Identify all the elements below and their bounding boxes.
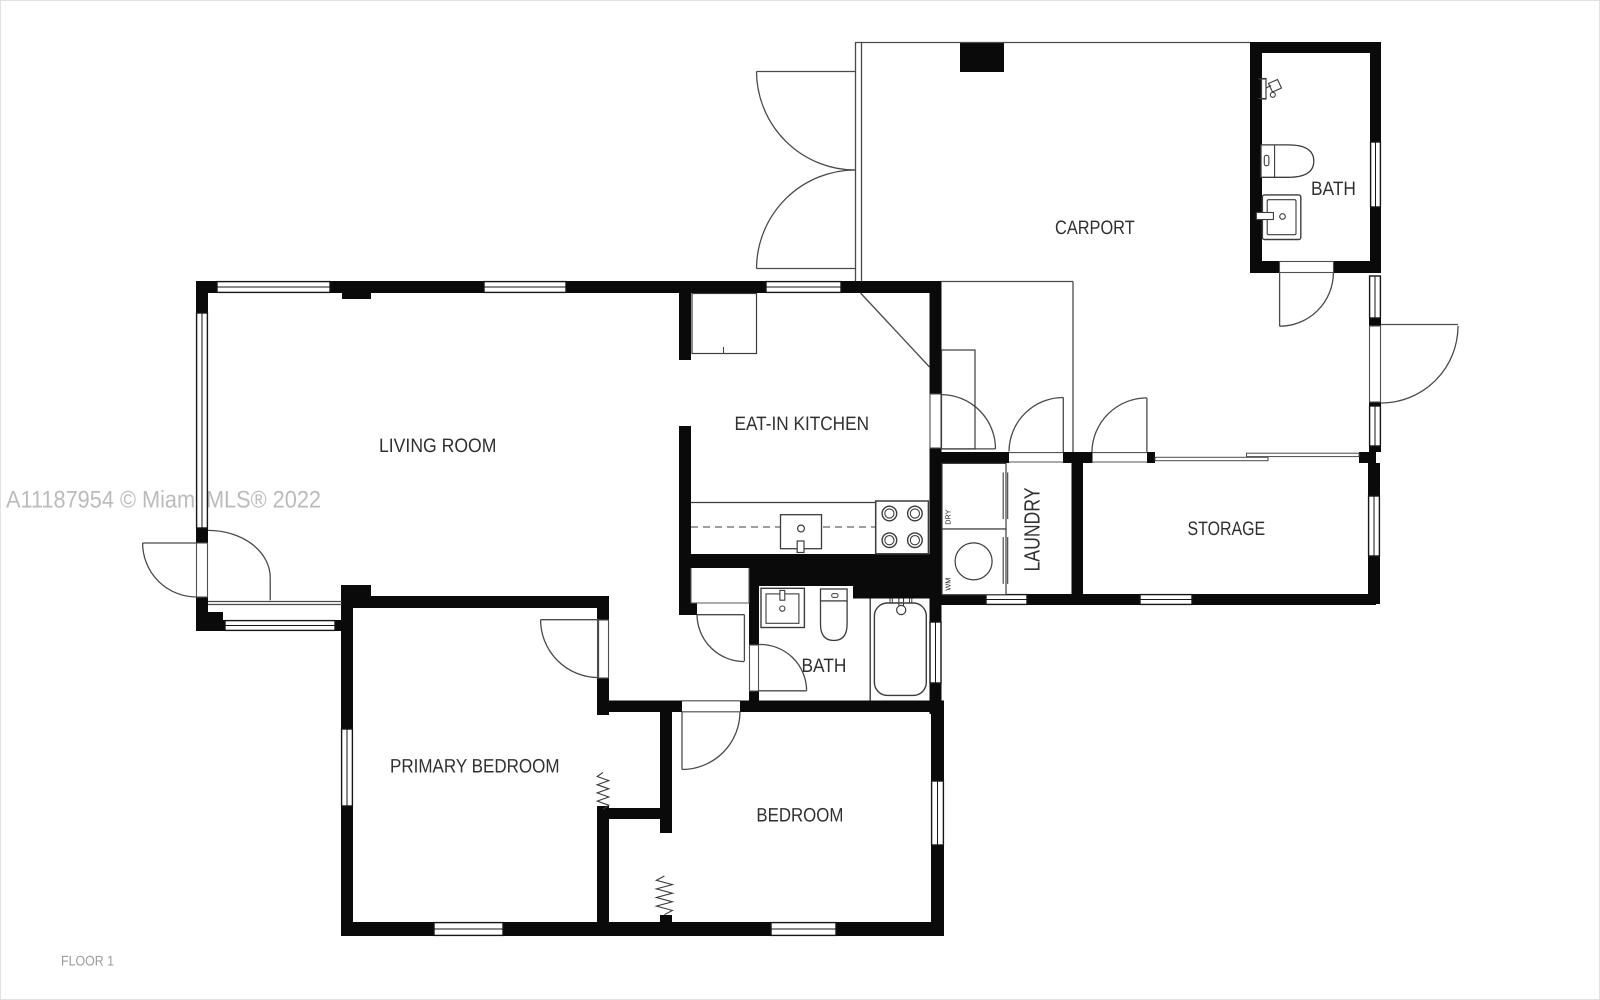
svg-text:A11187954 © Miami MLS® 2022: A11187954 © Miami MLS® 2022 [6,487,321,514]
svg-text:LAUNDRY: LAUNDRY [1020,487,1045,571]
svg-text:EAT-IN KITCHEN: EAT-IN KITCHEN [735,413,870,435]
svg-text:LIVING ROOM: LIVING ROOM [379,435,496,457]
svg-text:CARPORT: CARPORT [1055,217,1135,239]
svg-text:DRY: DRY [943,509,952,524]
svg-text:BEDROOM: BEDROOM [756,805,843,827]
svg-text:BATH: BATH [802,655,847,677]
svg-text:STORAGE: STORAGE [1188,518,1266,540]
svg-text:PRIMARY BEDROOM: PRIMARY BEDROOM [390,756,560,778]
svg-text:FLOOR 1: FLOOR 1 [61,953,114,969]
svg-text:WM: WM [943,578,952,591]
svg-text:BATH: BATH [1311,178,1356,200]
